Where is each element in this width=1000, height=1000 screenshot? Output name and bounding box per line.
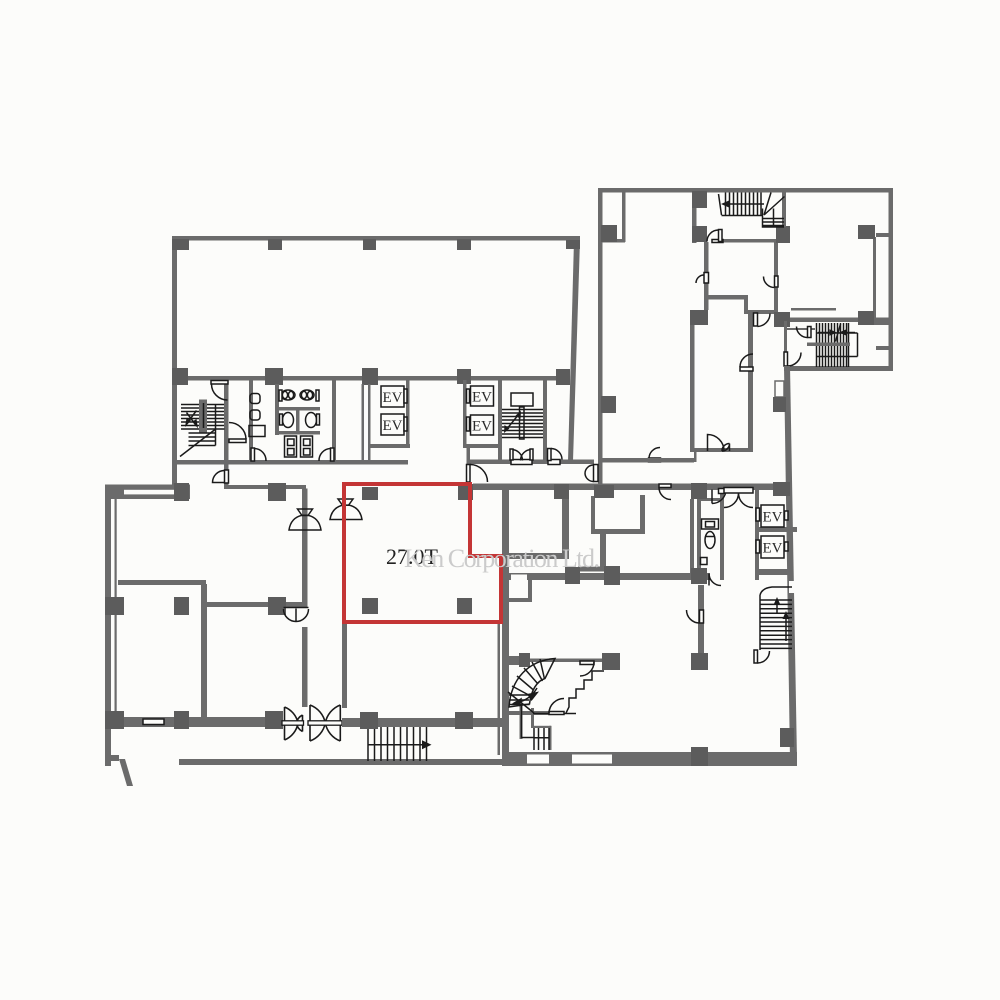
svg-text:EV: EV	[383, 390, 403, 406]
svg-text:EV: EV	[472, 419, 492, 435]
svg-text:Ken Corporation Ltd.: Ken Corporation Ltd.	[404, 544, 600, 573]
svg-text:EV: EV	[383, 418, 403, 434]
svg-text:EV: EV	[763, 541, 783, 557]
svg-text:EV: EV	[472, 390, 492, 406]
svg-text:EV: EV	[763, 510, 783, 526]
